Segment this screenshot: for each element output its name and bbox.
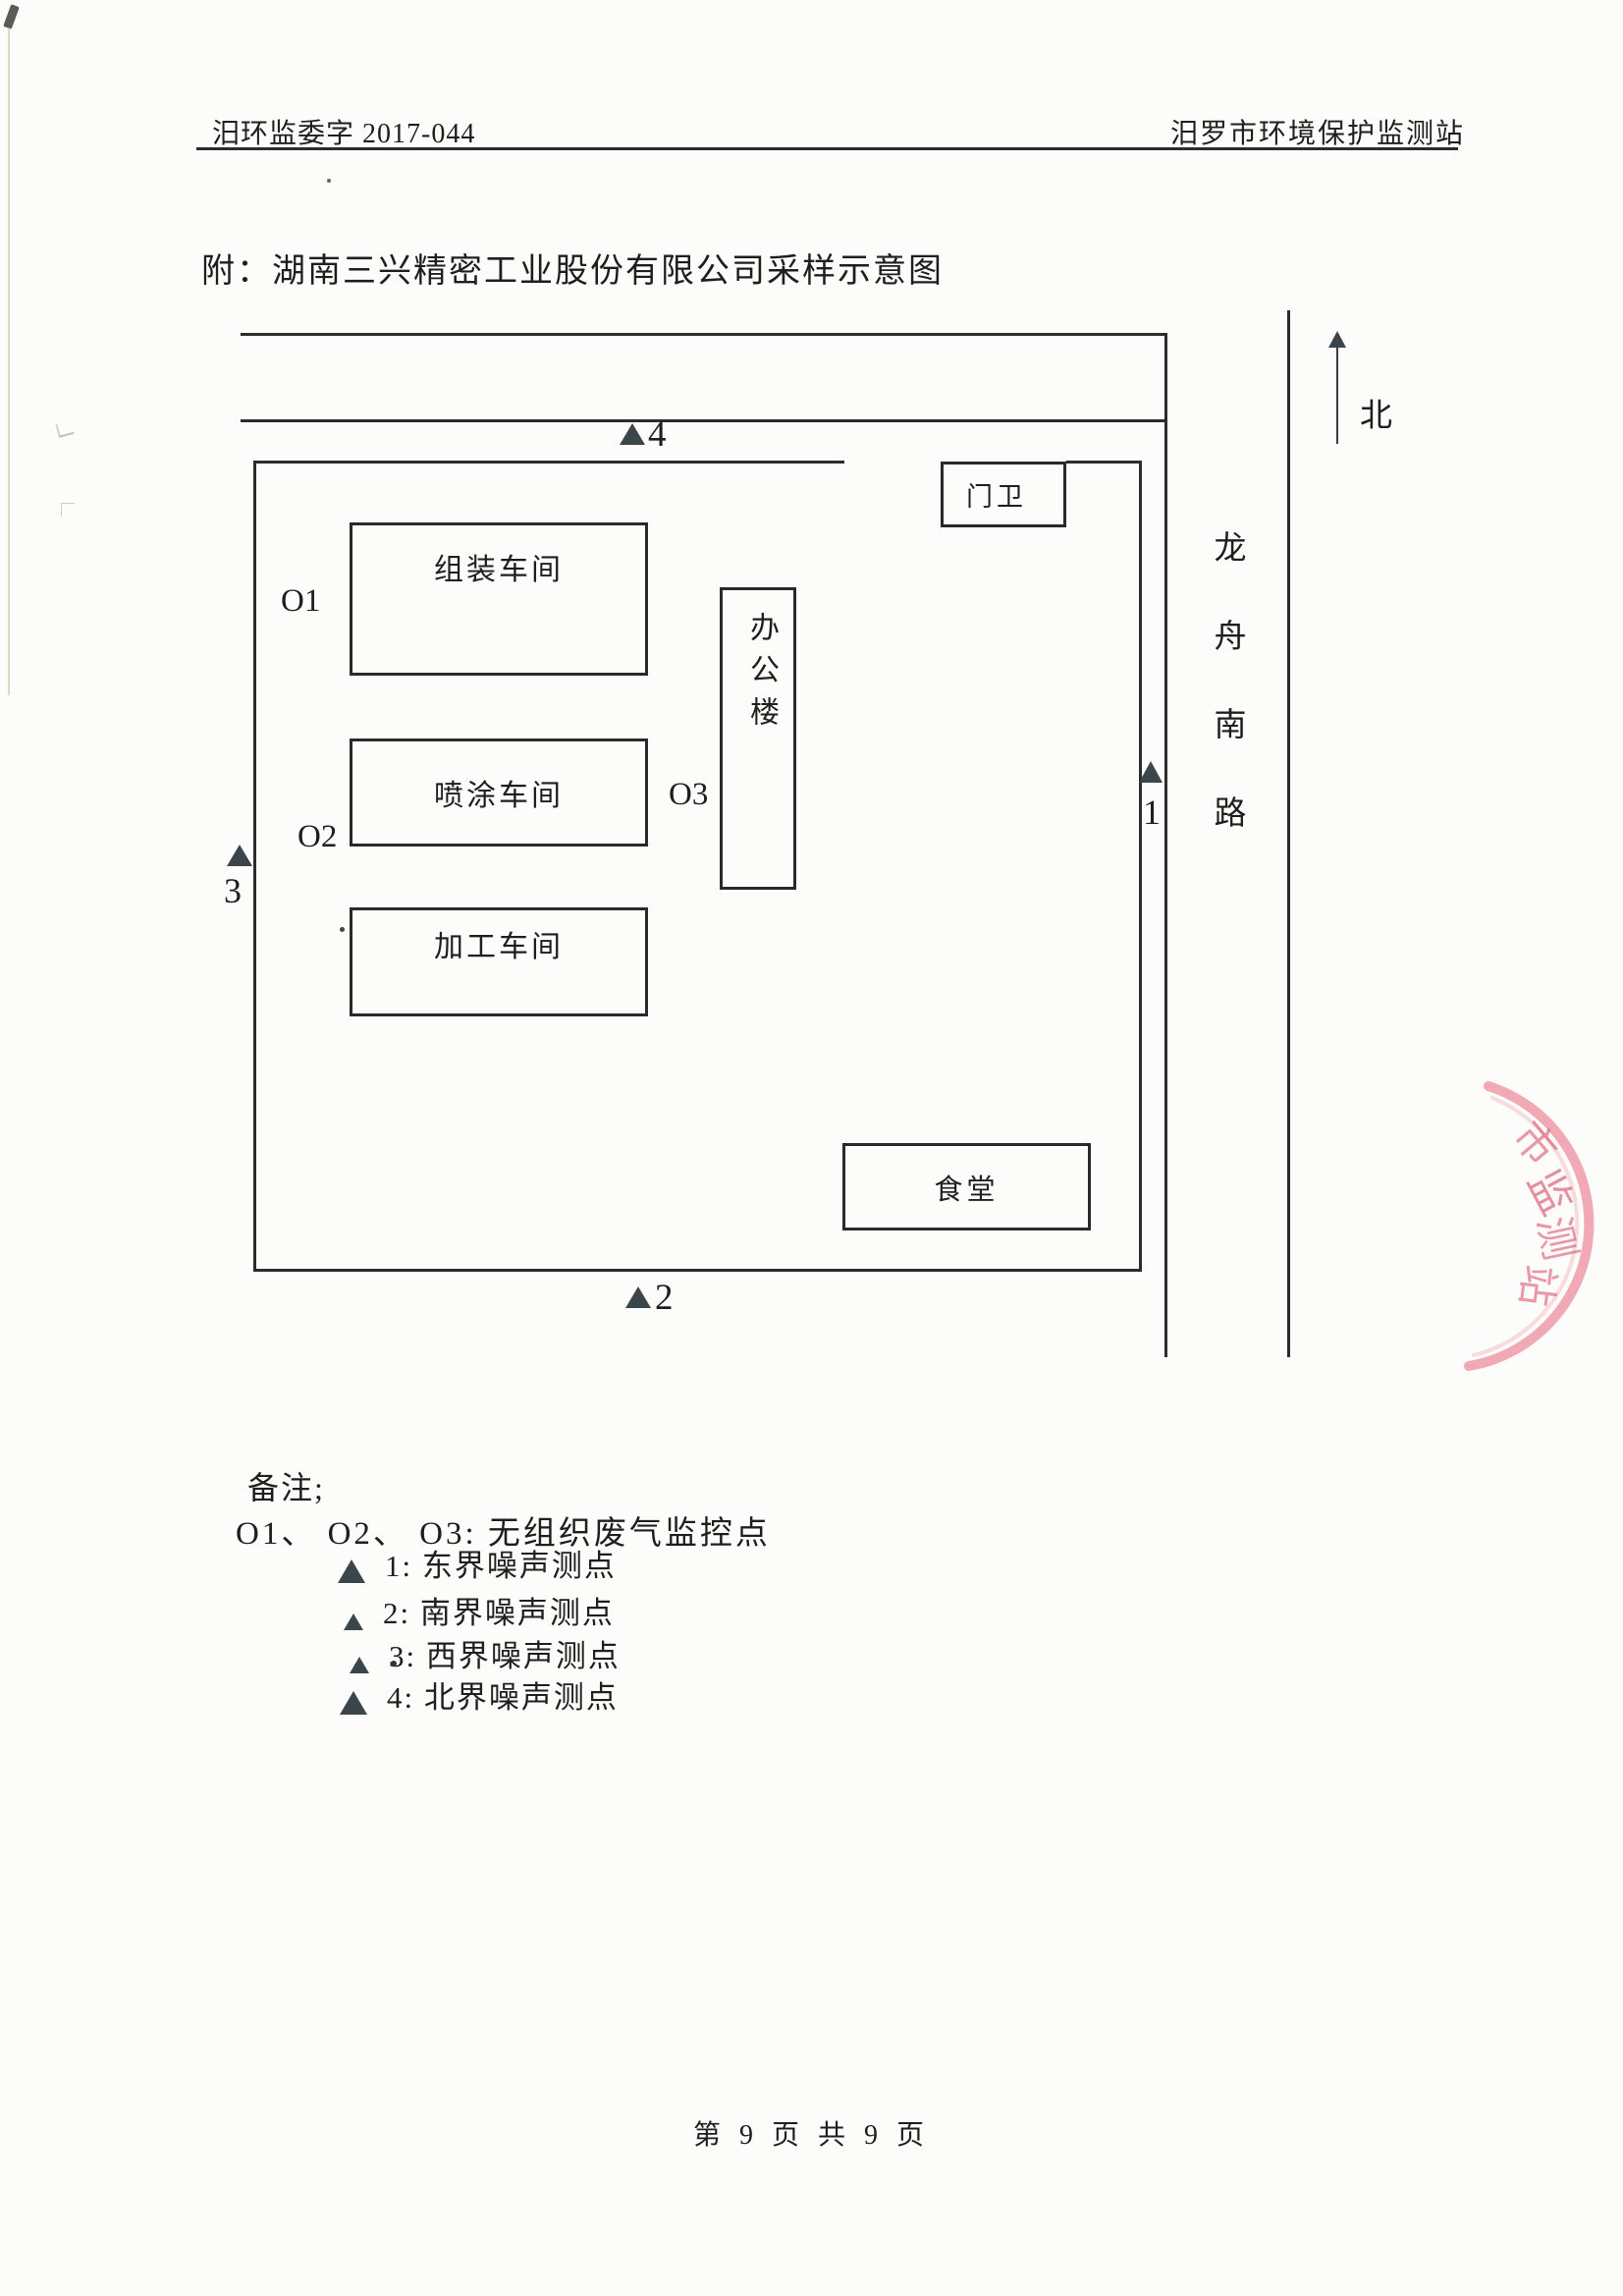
north-arrow-head bbox=[1328, 331, 1346, 348]
noise-legend-text-1: 1: 东界噪声测点 bbox=[385, 1550, 617, 1583]
speck bbox=[55, 420, 74, 438]
scan-edge-line bbox=[8, 27, 10, 695]
red-seal-stamp: 市 监 测 站 bbox=[1414, 1011, 1623, 1385]
noise-legend-row-3: 3: 西界噪声测点 bbox=[350, 1640, 621, 1673]
speck bbox=[61, 503, 75, 517]
noise-label-1: 1 bbox=[1143, 792, 1161, 833]
noise-legend-text-2: 2: 南界噪声测点 bbox=[383, 1597, 615, 1630]
noise-legend-marker-1 bbox=[338, 1559, 365, 1583]
factory-boundary-top-west bbox=[253, 461, 844, 464]
spray-workshop-label: 喷涂车间 bbox=[434, 771, 564, 814]
header-rule bbox=[196, 147, 1458, 150]
canteen-box: 食堂 bbox=[842, 1143, 1091, 1230]
org-name: 汨罗市环境保护监测站 bbox=[1170, 112, 1465, 151]
north-arrow-line bbox=[1336, 346, 1338, 444]
road-line-top-1 bbox=[241, 333, 1164, 336]
assembly-workshop-label: 组装车间 bbox=[352, 545, 645, 588]
noise-marker-2 bbox=[625, 1286, 651, 1308]
road-name: 龙舟南路 bbox=[1209, 530, 1244, 884]
assembly-workshop-box: 组装车间 bbox=[350, 522, 648, 676]
canteen-label: 食堂 bbox=[934, 1167, 999, 1208]
guard-house-label: 门卫 bbox=[966, 475, 1041, 514]
noise-legend-text-4: 4: 北界噪声测点 bbox=[387, 1681, 619, 1715]
factory-boundary-right bbox=[1139, 461, 1142, 1272]
machining-workshop-box: 加工车间 bbox=[350, 907, 648, 1016]
office-building-label: 办公楼 bbox=[744, 612, 778, 738]
gas-point-o3: O3 bbox=[669, 777, 708, 813]
noise-label-4: 4 bbox=[648, 413, 667, 456]
speck bbox=[340, 927, 345, 932]
doc-number: 汨环监委字 2017-044 bbox=[212, 112, 475, 151]
road-line-top-2 bbox=[241, 419, 1164, 422]
noise-legend-row-2: 2: 南界噪声测点 bbox=[344, 1597, 615, 1630]
speck bbox=[391, 1661, 397, 1667]
spray-workshop-box: 喷涂车间 bbox=[350, 738, 648, 847]
page-footer: 第 9 页 共 9 页 bbox=[0, 2113, 1623, 2153]
office-building-box: 办公楼 bbox=[720, 587, 796, 890]
seal-char: 测 bbox=[1528, 1212, 1584, 1264]
gas-point-o2: O2 bbox=[298, 819, 337, 855]
factory-boundary-bottom bbox=[253, 1269, 1142, 1272]
noise-label-3: 3 bbox=[224, 870, 242, 911]
page-title: 附：湖南三兴精密工业股份有限公司采样示意图 bbox=[201, 244, 944, 292]
scan-edge-mark bbox=[3, 4, 20, 29]
noise-legend-marker-3 bbox=[350, 1657, 369, 1673]
noise-marker-3 bbox=[227, 845, 252, 866]
noise-legend-text-3: 3: 西界噪声测点 bbox=[389, 1640, 621, 1673]
noise-marker-4 bbox=[620, 423, 645, 445]
notes-heading: 备注; bbox=[247, 1463, 325, 1508]
speck bbox=[327, 179, 331, 183]
road-line-east-left bbox=[1164, 333, 1167, 1357]
guard-house-box: 门卫 bbox=[941, 462, 1066, 527]
factory-boundary-left bbox=[253, 461, 256, 1272]
noise-legend-marker-2 bbox=[344, 1613, 363, 1630]
road-line-east-right bbox=[1287, 310, 1290, 1357]
notes-gas-line: O1、 O2、 O3: 无组织废气监控点 bbox=[236, 1506, 771, 1554]
machining-workshop-label: 加工车间 bbox=[352, 922, 645, 965]
scanned-document-page: 汨环监委字 2017-044 汨罗市环境保护监测站 附：湖南三兴精密工业股份有限… bbox=[0, 0, 1623, 2296]
factory-boundary-top-east bbox=[1066, 461, 1142, 464]
noise-legend-row-4: 4: 北界噪声测点 bbox=[340, 1681, 619, 1715]
noise-label-2: 2 bbox=[655, 1277, 674, 1319]
north-label: 北 bbox=[1360, 389, 1392, 436]
seal-char: 站 bbox=[1511, 1262, 1561, 1308]
noise-legend-row-1: 1: 东界噪声测点 bbox=[338, 1550, 617, 1583]
gas-point-o1: O1 bbox=[281, 583, 320, 620]
noise-legend-marker-4 bbox=[340, 1691, 367, 1715]
noise-marker-1 bbox=[1139, 761, 1163, 783]
